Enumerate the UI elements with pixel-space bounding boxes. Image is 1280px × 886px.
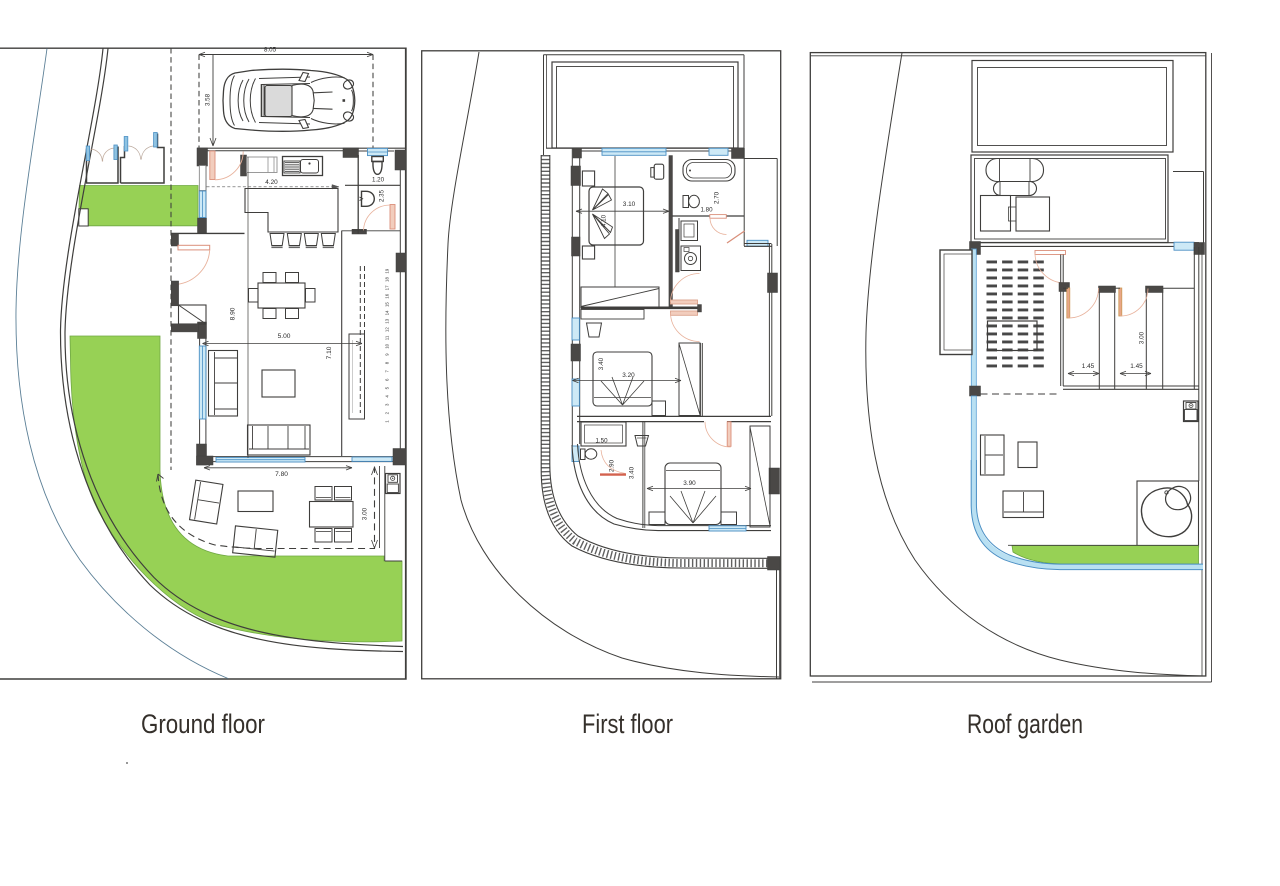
svg-text:3.10: 3.10 (623, 201, 636, 208)
svg-text:First floor: First floor (582, 709, 673, 739)
svg-text:1.50: 1.50 (595, 438, 608, 445)
svg-text:11: 11 (385, 335, 390, 340)
svg-text:13: 13 (385, 318, 390, 323)
svg-text:7.10: 7.10 (326, 346, 333, 359)
svg-text:5.00: 5.00 (278, 333, 291, 340)
svg-text:Roof garden: Roof garden (967, 709, 1083, 739)
svg-text:1.20: 1.20 (372, 177, 385, 184)
svg-text:3.40: 3.40 (629, 466, 636, 479)
svg-text:18: 18 (385, 277, 390, 282)
svg-text:3.40: 3.40 (598, 357, 605, 370)
svg-text:16: 16 (385, 293, 390, 298)
svg-text:19: 19 (385, 268, 390, 273)
svg-text:3.58: 3.58 (205, 93, 212, 106)
svg-text:Ground floor: Ground floor (141, 709, 265, 739)
svg-text:2.35: 2.35 (379, 189, 386, 202)
svg-text:10: 10 (385, 343, 390, 348)
svg-text:3.20: 3.20 (622, 372, 635, 379)
svg-text:17: 17 (385, 285, 390, 290)
svg-text:3.00: 3.00 (1139, 331, 1146, 344)
svg-text:3.90: 3.90 (683, 480, 696, 487)
svg-text:2.70: 2.70 (714, 191, 721, 204)
svg-text:1.80: 1.80 (700, 207, 713, 214)
svg-text:4.10: 4.10 (601, 214, 608, 227)
svg-text:14: 14 (385, 310, 390, 315)
svg-text:8.05: 8.05 (264, 47, 277, 54)
svg-text:8.90: 8.90 (230, 307, 237, 320)
svg-text:4.20: 4.20 (265, 179, 278, 186)
svg-text:15: 15 (385, 302, 390, 307)
svg-text:12: 12 (385, 327, 390, 332)
svg-text:7.80: 7.80 (275, 471, 288, 478)
svg-text:1.45: 1.45 (1130, 363, 1143, 370)
svg-text:3.00: 3.00 (362, 507, 369, 520)
svg-text:1.45: 1.45 (1082, 363, 1095, 370)
